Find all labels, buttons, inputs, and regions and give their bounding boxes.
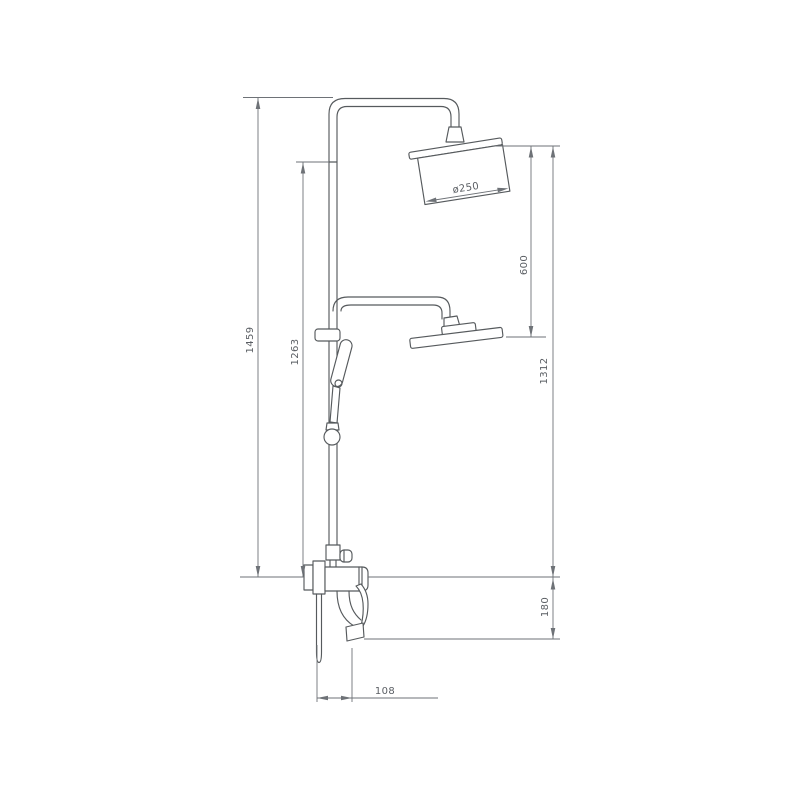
- overhead-to-outlet-label: 1312: [539, 357, 550, 384]
- slider-bracket: [315, 329, 340, 341]
- diverter-knob: [340, 550, 352, 562]
- escutcheon-outer: [304, 565, 313, 590]
- wand-handle: [330, 386, 340, 423]
- hand-shower-wand: [329, 338, 353, 387]
- diverter: [326, 545, 352, 562]
- mixer: [304, 561, 368, 641]
- overhead-drop-label: 600: [519, 255, 530, 275]
- diverter-body: [326, 545, 340, 560]
- mixer-body: [325, 567, 362, 591]
- dimensions: 1459 1263 600 1312 180: [240, 98, 560, 703]
- dimension-spout-reach: 108: [317, 686, 438, 700]
- overhead-shower-head-upper: ø250: [409, 138, 510, 206]
- dimension-total-height: 1459: [245, 98, 260, 578]
- technical-drawing: ø250: [0, 0, 800, 800]
- overhead-shower-lower: [333, 297, 503, 349]
- head-connector-upper: [446, 127, 464, 142]
- dimension-column-height: 1263: [290, 162, 305, 577]
- total-height-label: 1459: [245, 326, 256, 353]
- outlet-offset-label: 180: [540, 597, 551, 617]
- overhead-shower-upper: ø250: [409, 127, 510, 206]
- dimension-overhead-to-outlet: 1312: [539, 146, 555, 577]
- spout-reach-label: 108: [375, 686, 395, 697]
- dimension-outlet-offset: 180: [540, 577, 555, 639]
- escutcheon-inner: [313, 561, 325, 594]
- shower-column-figure: ø250: [304, 99, 510, 663]
- spout-inner-edge: [349, 591, 361, 620]
- spout-outlet: [346, 623, 364, 641]
- spout-outer-edge: [337, 591, 354, 626]
- dimension-overhead-drop: 600: [519, 146, 533, 337]
- ball-joint: [324, 429, 340, 445]
- lower-arm-outer: [333, 297, 450, 319]
- technical-drawing-page: ø250: [0, 0, 800, 800]
- column-height-label: 1263: [290, 338, 301, 365]
- hand-shower-assembly: [315, 329, 353, 445]
- lower-arm-inner: [341, 305, 442, 319]
- wand-head: [329, 338, 353, 387]
